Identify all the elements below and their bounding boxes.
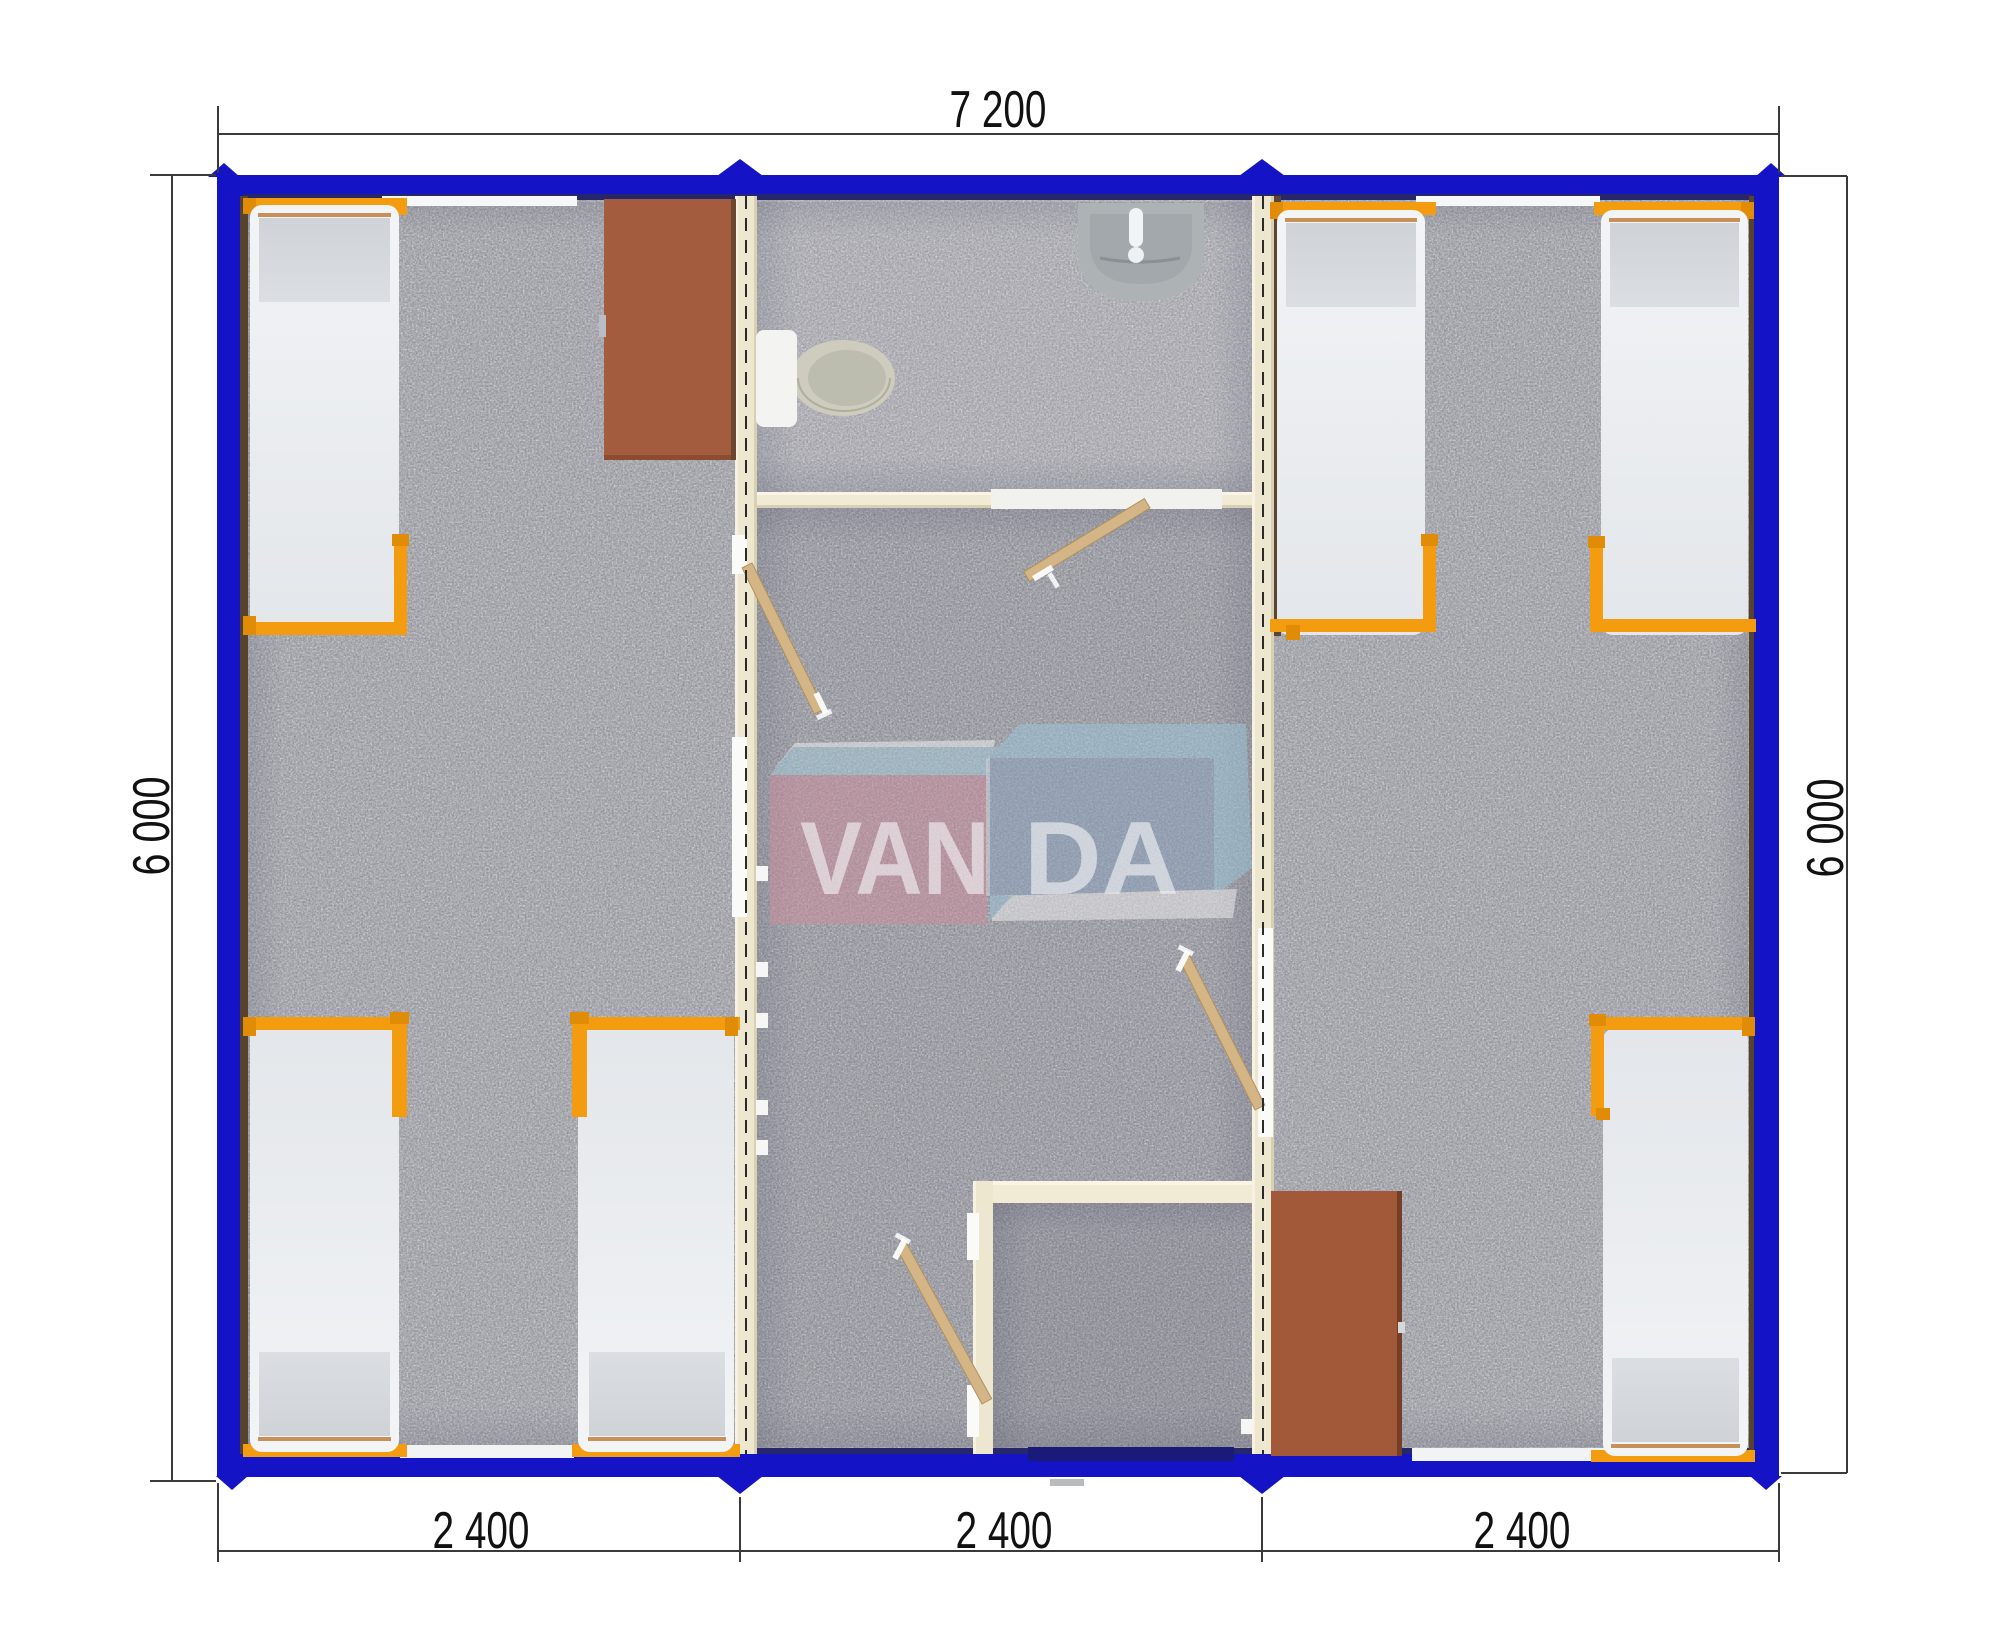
svg-text:6 000: 6 000 xyxy=(1797,779,1855,878)
svg-text:2 400: 2 400 xyxy=(956,1502,1053,1560)
svg-text:6 000: 6 000 xyxy=(123,777,181,876)
svg-text:DA: DA xyxy=(1024,801,1179,917)
svg-text:VAN: VAN xyxy=(800,801,990,917)
svg-text:7 200: 7 200 xyxy=(950,81,1047,139)
svg-text:2 400: 2 400 xyxy=(1474,1502,1571,1560)
svg-text:2 400: 2 400 xyxy=(433,1502,530,1560)
